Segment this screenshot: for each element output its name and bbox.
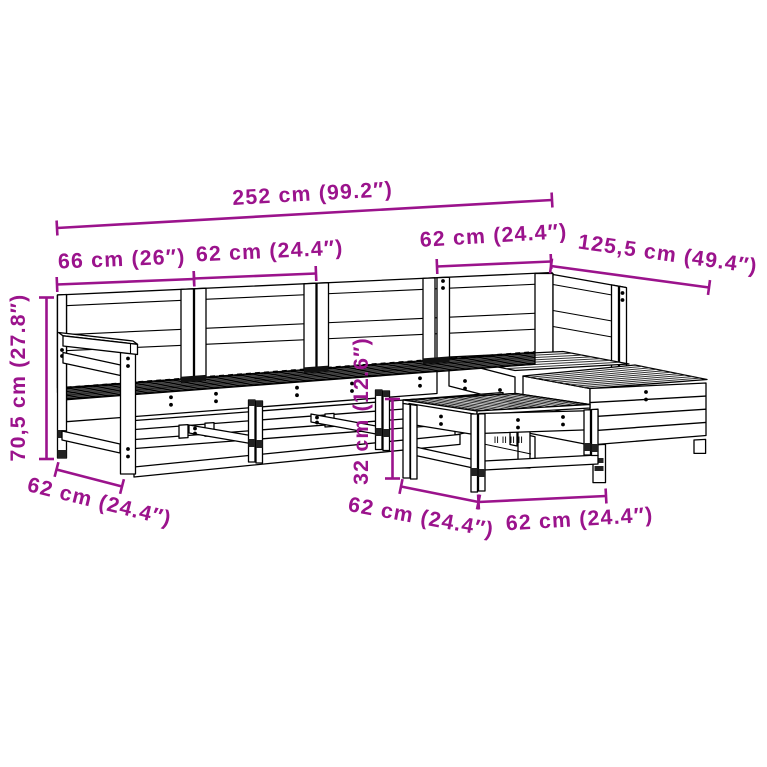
svg-text:70,5 cm (27.8″): 70,5 cm (27.8″) (6, 294, 30, 462)
svg-text:32 cm (12.6″): 32 cm (12.6″) (349, 337, 373, 485)
svg-text:66 cm (26″): 66 cm (26″) (57, 244, 185, 273)
